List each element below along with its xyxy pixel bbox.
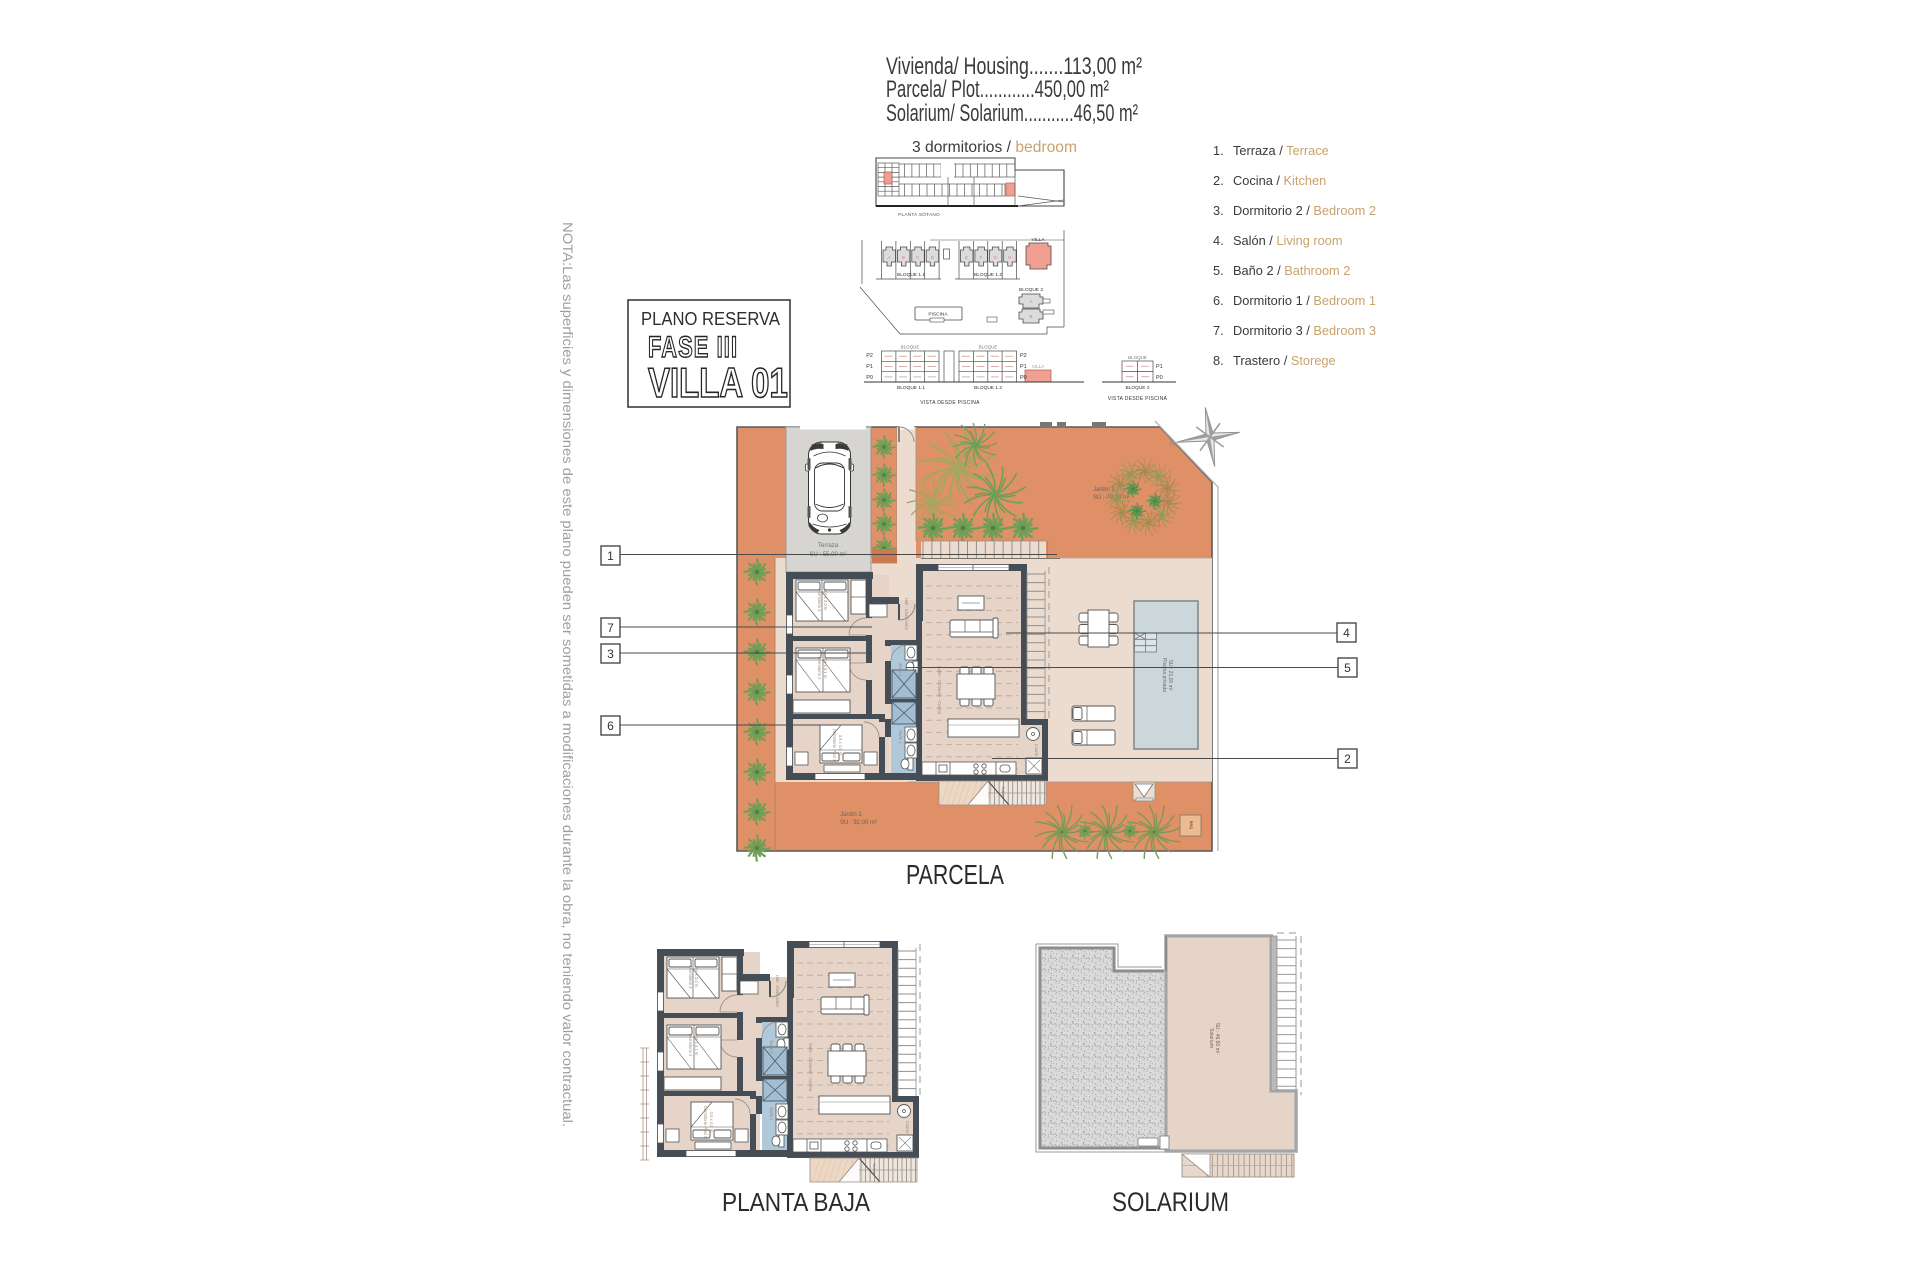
svg-text:E: E: [965, 255, 968, 260]
svg-text:N: N: [1169, 441, 1175, 449]
svg-text:3 dormitorios / bedroom: 3 dormitorios / bedroom: [912, 139, 1077, 156]
svg-text:VISTA DESDE PISCINA: VISTA DESDE PISCINA: [920, 400, 980, 406]
svg-text:VILLA: VILLA: [1031, 237, 1045, 243]
svg-text:PLANTA BAJA: PLANTA BAJA: [722, 1187, 871, 1217]
svg-text:Baño 2 / Bathroom 2: Baño 2 / Bathroom 2: [1233, 263, 1350, 278]
svg-text:PISCINA: PISCINA: [928, 312, 948, 318]
svg-text:SU : 92,00 m²: SU : 92,00 m²: [840, 820, 877, 826]
svg-text:Dormitorio 3 / Bedroom 3: Dormitorio 3 / Bedroom 3: [1233, 323, 1376, 338]
svg-text:Parcela/ Plot............450,0: Parcela/ Plot............450,00 m²: [886, 76, 1109, 103]
svg-text:G: G: [994, 255, 998, 260]
svg-text:3.: 3.: [1213, 203, 1224, 218]
svg-text:Terraza: Terraza: [818, 543, 839, 549]
svg-text:P0: P0: [866, 375, 873, 381]
svg-text:H: H: [1008, 255, 1011, 260]
svg-text:5: 5: [1344, 661, 1351, 675]
svg-text:BLOQUE: BLOQUE: [1128, 355, 1147, 360]
svg-text:P0: P0: [1156, 375, 1163, 381]
svg-text:BLOQUE 2: BLOQUE 2: [1019, 287, 1043, 293]
svg-text:VISTA DESDE PISCINA: VISTA DESDE PISCINA: [1108, 396, 1168, 402]
svg-text:1: 1: [607, 549, 614, 563]
svg-text:Salón / Living room: Salón / Living room: [1233, 233, 1343, 248]
svg-text:1.: 1.: [1213, 143, 1224, 158]
svg-text:NOTA:Las superficies y dimensi: NOTA:Las superficies y dimensiones de es…: [560, 222, 576, 1127]
svg-text:SU : 21,00 m²: SU : 21,00 m²: [1167, 660, 1173, 691]
svg-text:P1: P1: [1156, 364, 1163, 370]
svg-text:BLOQUE 2: BLOQUE 2: [1126, 385, 1150, 391]
svg-text:P2: P2: [1020, 353, 1027, 359]
svg-text:B: B: [902, 255, 905, 260]
svg-text:VILLA: VILLA: [1032, 364, 1044, 369]
svg-text:BLOQUE 1.2: BLOQUE 1.2: [974, 272, 1002, 278]
svg-text:Dormitorio 2 / Bedroom 2: Dormitorio 2 / Bedroom 2: [1233, 203, 1376, 218]
svg-text:PLANTA SÓTANO: PLANTA SÓTANO: [898, 211, 940, 218]
svg-text:BLOQUE: BLOQUE: [979, 345, 998, 350]
svg-text:A: A: [1029, 299, 1032, 304]
svg-text:Trastero / Storege: Trastero / Storege: [1233, 353, 1336, 368]
svg-text:3: 3: [607, 647, 614, 661]
svg-text:BBQ: BBQ: [1189, 821, 1194, 829]
svg-text:2: 2: [1344, 752, 1351, 766]
svg-text:2.: 2.: [1213, 173, 1224, 188]
svg-text:VILLA 01: VILLA 01: [648, 359, 788, 406]
svg-text:5.: 5.: [1213, 263, 1224, 278]
svg-text:PARCELA: PARCELA: [906, 859, 1004, 890]
svg-text:Solarium: Solarium: [1208, 1028, 1214, 1048]
svg-text:B: B: [1029, 314, 1032, 319]
svg-text:Terraza / Terrace: Terraza / Terrace: [1233, 143, 1329, 158]
svg-text:Dormitorio 1 / Bedroom 1: Dormitorio 1 / Bedroom 1: [1233, 293, 1376, 308]
svg-text:SOLARIUM: SOLARIUM: [1112, 1187, 1229, 1217]
svg-text:BLOQUE: BLOQUE: [901, 345, 920, 350]
svg-text:BLOQUE 1.2: BLOQUE 1.2: [974, 385, 1002, 391]
svg-text:6.: 6.: [1213, 293, 1224, 308]
svg-text:P0: P0: [1020, 375, 1027, 381]
svg-text:SU : 46,50 m²: SU : 46,50 m²: [1214, 1023, 1220, 1054]
svg-text:BLOQUE 1.1: BLOQUE 1.1: [897, 272, 925, 278]
svg-text:Jardín 1: Jardín 1: [840, 812, 862, 818]
svg-text:P1: P1: [866, 364, 873, 370]
svg-text:7: 7: [607, 621, 614, 635]
svg-text:PLANO RESERVA: PLANO RESERVA: [641, 309, 780, 329]
svg-text:P2: P2: [866, 353, 873, 359]
svg-text:BLOQUE 1.1: BLOQUE 1.1: [897, 385, 925, 391]
svg-text:F: F: [980, 255, 983, 260]
svg-text:6: 6: [607, 719, 614, 733]
svg-text:A: A: [887, 255, 890, 260]
svg-text:P1: P1: [1020, 364, 1027, 370]
svg-text:4.: 4.: [1213, 233, 1224, 248]
svg-text:4: 4: [1343, 626, 1350, 640]
svg-text:Piscina privada: Piscina privada: [1161, 658, 1167, 692]
svg-text:Solarium/ Solarium...........4: Solarium/ Solarium...........46,50 m²: [886, 100, 1138, 127]
svg-text:7.: 7.: [1213, 323, 1224, 338]
svg-text:Cocina / Kitchen: Cocina / Kitchen: [1233, 173, 1326, 188]
svg-text:8.: 8.: [1213, 353, 1224, 368]
